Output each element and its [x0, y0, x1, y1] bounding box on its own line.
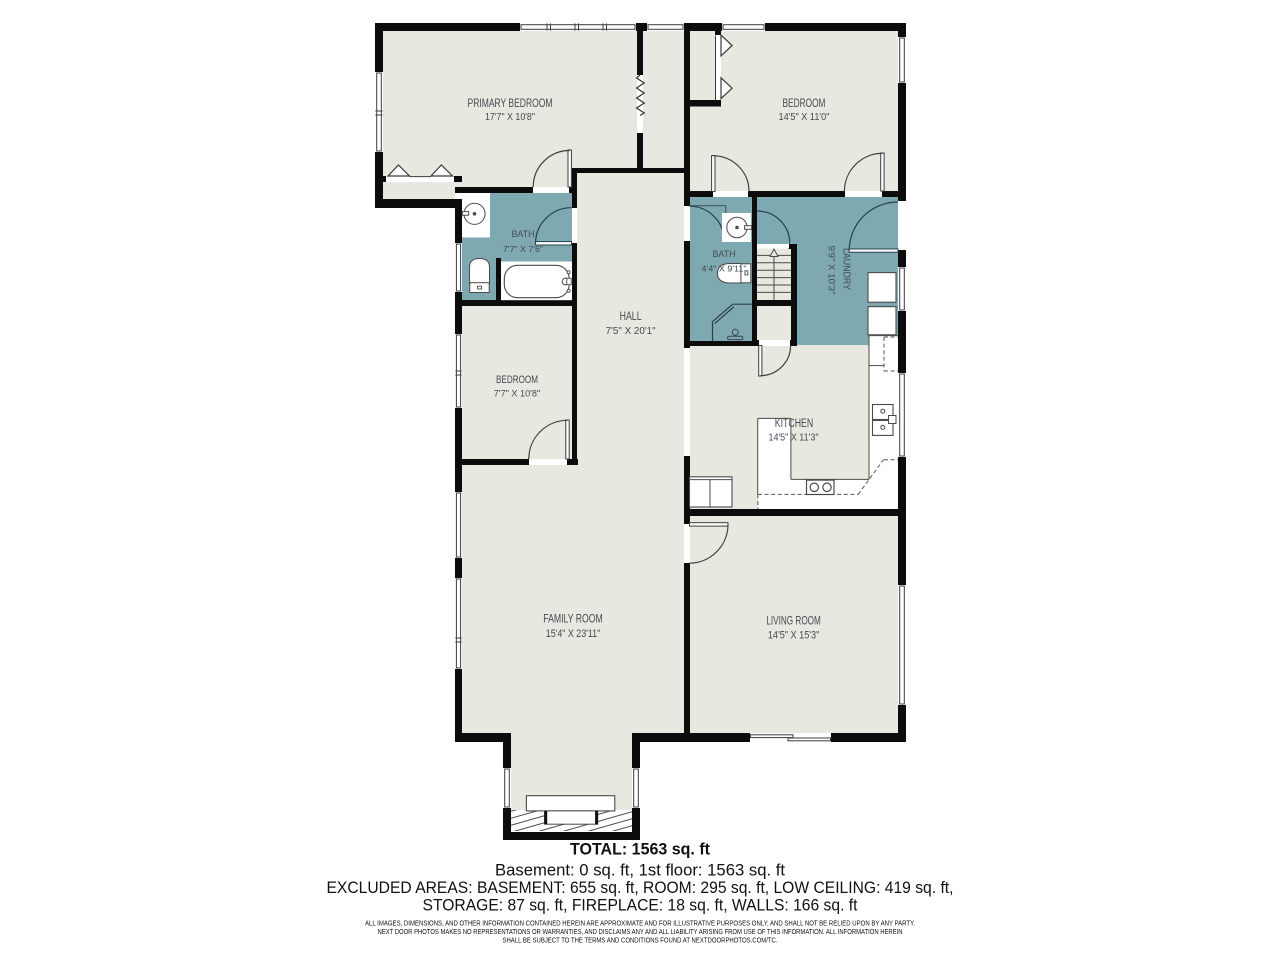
- svg-text:BATH: BATH: [713, 249, 736, 259]
- svg-text:LIVING ROOM: LIVING ROOM: [766, 614, 821, 628]
- svg-text:14'5" X 15'3": 14'5" X 15'3": [768, 630, 820, 642]
- svg-text:BATH: BATH: [512, 229, 535, 239]
- svg-text:BEDROOM: BEDROOM: [783, 96, 826, 110]
- svg-text:7'5" X 20'1": 7'5" X 20'1": [606, 325, 656, 337]
- svg-text:9'9" X 10'3": 9'9" X 10'3": [826, 246, 837, 295]
- svg-text:FAMILY ROOM: FAMILY ROOM: [543, 612, 603, 626]
- svg-text:KITCHEN: KITCHEN: [775, 418, 814, 430]
- svg-text:7'7" X 7'6": 7'7" X 7'6": [503, 245, 543, 254]
- svg-text:15'4" X 23'11": 15'4" X 23'11": [546, 628, 601, 640]
- svg-text:SHALL BE SUBJECT TO THE TERMS: SHALL BE SUBJECT TO THE TERMS AND CONDIT…: [503, 936, 778, 945]
- svg-text:BEDROOM: BEDROOM: [496, 374, 538, 386]
- svg-text:7'7" X 10'8": 7'7" X 10'8": [494, 389, 541, 400]
- svg-text:TOTAL: 1563 sq. ft: TOTAL: 1563 sq. ft: [570, 841, 710, 859]
- svg-text:4'4" X 9'11": 4'4" X 9'11": [702, 265, 747, 274]
- svg-text:HALL: HALL: [620, 309, 642, 323]
- svg-text:17'7" X 10'8": 17'7" X 10'8": [485, 111, 535, 123]
- svg-text:PRIMARY BEDROOM: PRIMARY BEDROOM: [468, 96, 553, 110]
- svg-text:14'5" X 11'3": 14'5" X 11'3": [769, 432, 819, 444]
- svg-text:Basement: 0 sq. ft, 1st floor:: Basement: 0 sq. ft, 1st floor: 1563 sq. …: [495, 862, 785, 880]
- svg-text:LAUNDRY: LAUNDRY: [841, 248, 853, 290]
- svg-text:EXCLUDED AREAS: BASEMENT: 655: EXCLUDED AREAS: BASEMENT: 655 sq. ft, RO…: [327, 879, 954, 897]
- svg-text:STORAGE: 87 sq. ft, FIREPLACE:: STORAGE: 87 sq. ft, FIREPLACE: 18 sq. ft…: [423, 897, 858, 915]
- svg-text:14'5" X 11'0": 14'5" X 11'0": [779, 111, 830, 123]
